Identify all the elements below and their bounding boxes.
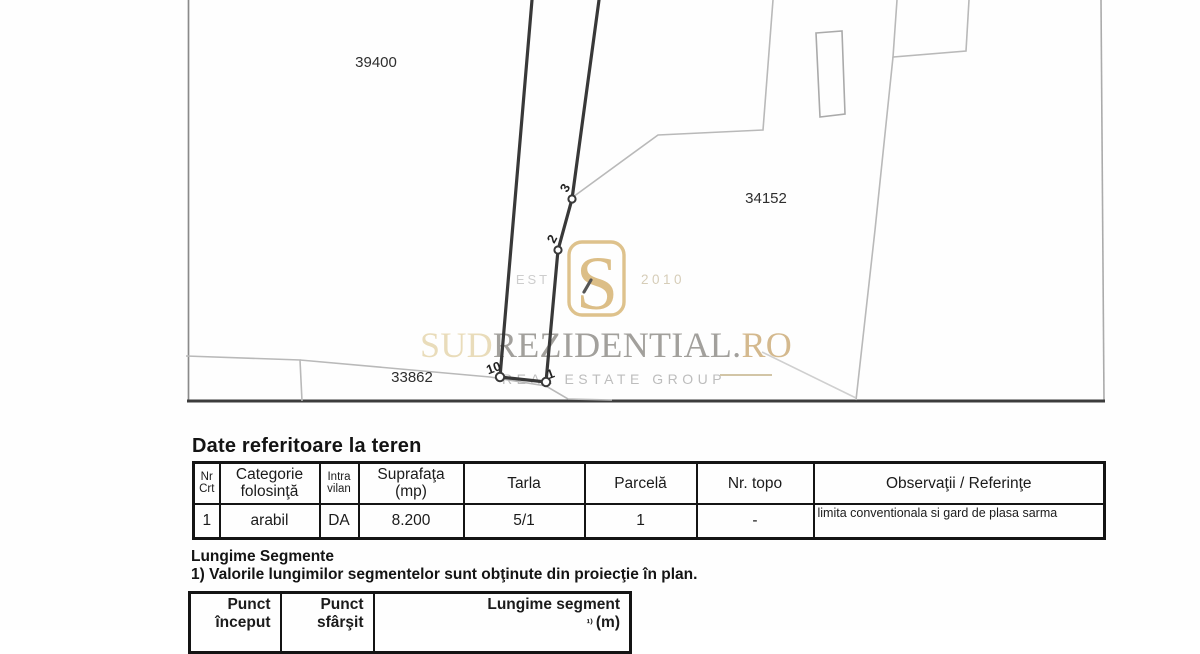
- logo-year: 2010: [641, 272, 685, 287]
- cell-nr-topo: -: [697, 504, 814, 539]
- col-header-punct-sfarsit: Punct sfârşit: [281, 593, 374, 653]
- land-table-header-row: Nr Crt Categorie folosinţă Intra vilan S…: [194, 463, 1105, 504]
- point-label-3: 3: [557, 181, 574, 194]
- logo-shield-letter: S: [576, 242, 618, 326]
- logo-dot: .: [732, 325, 741, 365]
- col-header-tarla: Tarla: [464, 463, 585, 504]
- logo-sud: SUD: [420, 325, 493, 365]
- cell-observatii: limita conventionala si gard de plasa sa…: [814, 504, 1105, 539]
- section-title-segmente: Lungime Segmente: [191, 548, 334, 566]
- watermark-logo: S EST 2010 SUDREZIDENTIAL.RO REAL ESTATE…: [420, 242, 792, 387]
- cell-nr: 1: [194, 504, 220, 539]
- col-header-nr-crt: Nr Crt: [194, 463, 220, 504]
- cell-suprafata: 8.200: [359, 504, 464, 539]
- col-header-categorie: Categorie folosinţă: [220, 463, 320, 504]
- segments-footnote: 1) Valorile lungimilor segmentelor sunt …: [191, 566, 697, 584]
- section-title-teren: Date referitoare la teren: [192, 435, 422, 458]
- cadastral-map: S EST 2010 SUDREZIDENTIAL.RO REAL ESTATE…: [0, 0, 1200, 420]
- parcel-label-34152: 34152: [745, 190, 787, 207]
- col-header-observatii: Observaţii / Referinţe: [814, 463, 1105, 504]
- segments-table-header-row: Punct început Punct sfârşit Lungime segm…: [190, 593, 631, 653]
- col-header-punct-inceput: Punct început: [190, 593, 281, 653]
- logo-rezidential: REZIDENTIAL: [493, 325, 732, 365]
- col-header-lungime-segment: Lungime segment ¹⁾ (m): [374, 593, 631, 653]
- parcel-label-39400: 39400: [355, 54, 397, 71]
- col-header-parcela: Parcelă: [585, 463, 697, 504]
- cell-parcela: 1: [585, 504, 697, 539]
- building-outline: [816, 31, 845, 117]
- cell-categorie: arabil: [220, 504, 320, 539]
- cell-intravilan: DA: [320, 504, 359, 539]
- land-table-data-row: 1 arabil DA 8.200 5/1 1 - limita convent…: [194, 504, 1105, 539]
- land-data-table: Nr Crt Categorie folosinţă Intra vilan S…: [192, 461, 1106, 540]
- logo-ro: RO: [741, 325, 792, 365]
- logo-wordmark: SUDREZIDENTIAL.RO: [420, 325, 792, 365]
- col-header-suprafata: Suprafaţa (mp): [359, 463, 464, 504]
- segments-table: Punct început Punct sfârşit Lungime segm…: [188, 591, 632, 654]
- col-header-intravilan: Intra vilan: [320, 463, 359, 504]
- logo-tagline: REAL ESTATE GROUP: [502, 371, 726, 387]
- footnote-marker: ¹⁾: [586, 618, 595, 630]
- col-header-nr-topo: Nr. topo: [697, 463, 814, 504]
- parcel-label-33862: 33862: [391, 369, 433, 386]
- cell-tarla: 5/1: [464, 504, 585, 539]
- point-label-2: 2: [544, 232, 561, 245]
- document-page: S EST 2010 SUDREZIDENTIAL.RO REAL ESTATE…: [0, 0, 1200, 630]
- logo-est: EST: [516, 272, 550, 287]
